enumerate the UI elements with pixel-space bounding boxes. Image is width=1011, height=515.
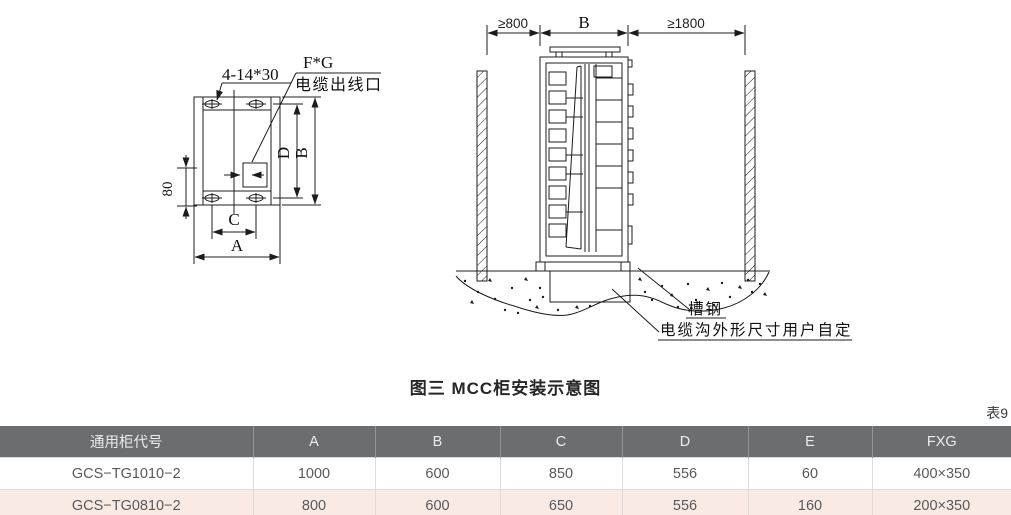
hole-icon [202,193,222,203]
dimension-c: C [212,205,256,239]
mcc-cabinet [536,47,633,271]
table-cell: 650 [500,490,622,515]
cabinet-body [540,57,628,262]
table-cell: 60 [748,458,872,490]
table-cell: 1000 [253,458,375,490]
hole-icon [246,193,266,203]
drawer-handles [628,60,633,244]
table-cell: 600 [375,490,500,515]
header-cell-code: 通用柜代号 [0,426,253,458]
catalog-page: 4-14*30 F*G 电缆出线口 D [0,0,1011,515]
hole-icon [246,99,266,109]
spec-table: 通用柜代号 A B C D E FXG GCS−TG1010−2 1000 60… [0,426,1011,515]
table-cell: 556 [622,458,748,490]
terminal-boxes [549,72,583,237]
table-cell: 200×350 [872,490,1011,515]
plan-view: 4-14*30 F*G 电缆出线口 D [160,53,383,264]
header-cell-e: E [748,426,872,458]
plan-outline [194,97,280,205]
table-cell: 800 [253,490,375,515]
left-wall [477,71,487,281]
dim-b-label: B [292,147,311,158]
dimension-80: 80 [160,155,197,219]
table-cell: 160 [748,490,872,515]
outlet-label: 电缆出线口 [295,76,383,94]
cabinet-door [566,66,581,249]
lifting-plate [550,47,620,52]
top-dimensions: ≥800 B ≥1800 [487,13,745,55]
table-cell: GCS−TG1010−2 [0,458,253,490]
table-row: GCS−TG1010−2 1000 600 850 556 60 400×350 [0,458,1011,490]
header-cell-c: C [500,426,622,458]
dim-a-label: A [231,236,244,255]
table-number: 表9 [986,403,1008,423]
holes-label: 4-14*30 [222,65,279,84]
channel-steel-label: 槽钢 [688,300,723,318]
dim-d-label: D [274,147,293,159]
table-cell: 850 [500,458,622,490]
header-cell-b: B [375,426,500,458]
side-view: ≥800 B ≥1800 [456,13,853,340]
fg-label: F*G [303,53,333,72]
cable-outlet [224,163,267,187]
right-gap-label: ≥1800 [667,16,704,31]
holes-callout: 4-14*30 [217,65,291,100]
table-cell: 600 [375,458,500,490]
dim-80-label: 80 [160,182,176,197]
figure-caption: 图三 MCC柜安装示意图 [0,374,1011,399]
right-wall [745,71,755,281]
header-cell-fxg: FXG [872,426,1011,458]
table-cell: 556 [622,490,748,515]
header-cell-a: A [253,426,375,458]
installation-diagram: 4-14*30 F*G 电缆出线口 D [0,0,1011,400]
hole-icon [202,99,222,109]
channel-steel-base [536,262,630,271]
table-cell: 400×350 [872,458,1011,490]
dim-c-label: C [228,210,239,229]
channel-steel-callout: 槽钢 [638,268,726,318]
trench-label: 电缆沟外形尺寸用户自定 [660,321,853,339]
table-cell: GCS−TG0810−2 [0,490,253,515]
table-row: GCS−TG0810−2 800 600 650 556 160 200×350 [0,490,1011,515]
left-gap-label: ≥800 [498,16,528,31]
drawer-section [594,64,622,252]
header-cell-d: D [622,426,748,458]
header-row: 通用柜代号 A B C D E FXG [0,426,1011,458]
width-label: B [578,13,589,32]
